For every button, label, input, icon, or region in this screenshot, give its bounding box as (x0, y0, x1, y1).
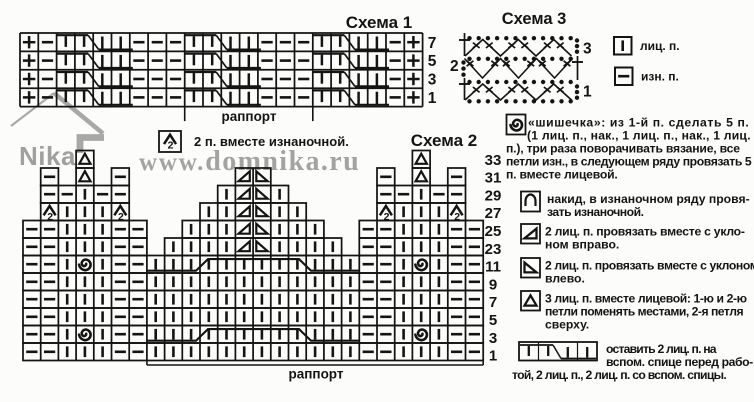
svg-text:7: 7 (428, 35, 437, 52)
svg-text:2: 2 (47, 211, 53, 223)
svg-text:раппорт: раппорт (222, 109, 277, 124)
svg-text:2: 2 (384, 211, 390, 223)
svg-text:7: 7 (489, 294, 497, 311)
svg-text:1: 1 (428, 90, 437, 107)
svg-text:1: 1 (489, 348, 497, 365)
svg-text:2 лиц. п. провязать вместе с у: 2 лиц. п. провязать вместе с уклономвлев… (545, 259, 754, 286)
svg-text:1: 1 (583, 84, 592, 101)
svg-text:2 п. вместе изнаночной.: 2 п. вместе изнаночной. (194, 134, 349, 149)
svg-text:«шишечка»: из 1-й п. сделать: «шишечка»: из 1-й п. сделать 5 п.(1 лиц.… (506, 116, 752, 182)
svg-text:2: 2 (450, 58, 459, 75)
svg-text:2: 2 (168, 140, 174, 152)
svg-text:29: 29 (485, 187, 502, 204)
svg-text:5: 5 (428, 53, 437, 70)
svg-text:9: 9 (489, 276, 497, 293)
svg-text:3: 3 (583, 41, 592, 58)
svg-text:Схема 2: Схема 2 (411, 131, 478, 150)
svg-text:Схема 3: Схема 3 (502, 10, 567, 28)
svg-text:2 лиц. п. провязать вместе с у: 2 лиц. п. провязать вместе с укло-ном вп… (545, 225, 745, 252)
svg-text:лиц. п.: лиц. п. (640, 39, 680, 53)
svg-text:33: 33 (485, 152, 502, 169)
svg-text:Схема 1: Схема 1 (346, 13, 413, 32)
svg-text:31: 31 (485, 170, 502, 187)
svg-text:25: 25 (485, 223, 502, 240)
svg-text:2: 2 (118, 211, 124, 223)
svg-text:11: 11 (485, 259, 501, 276)
svg-text:3: 3 (489, 330, 497, 347)
svg-text:2: 2 (454, 211, 460, 223)
svg-text:5: 5 (489, 312, 497, 329)
svg-text:27: 27 (485, 205, 502, 222)
svg-text:23: 23 (485, 241, 502, 258)
svg-text:накид, в изнаночном ряду провя: накид, в изнаночном ряду провя-зать изна… (547, 192, 750, 219)
svg-text:3 лиц. п. вместе лицевой: 1-ю: 3 лиц. п. вместе лицевой: 1-ю и 2-юпетли… (545, 292, 747, 332)
svg-text:раппорт: раппорт (289, 367, 344, 382)
svg-text:3: 3 (428, 72, 437, 89)
svg-text:Nika: Nika (19, 141, 76, 171)
svg-text:изн. п.: изн. п. (641, 70, 679, 84)
